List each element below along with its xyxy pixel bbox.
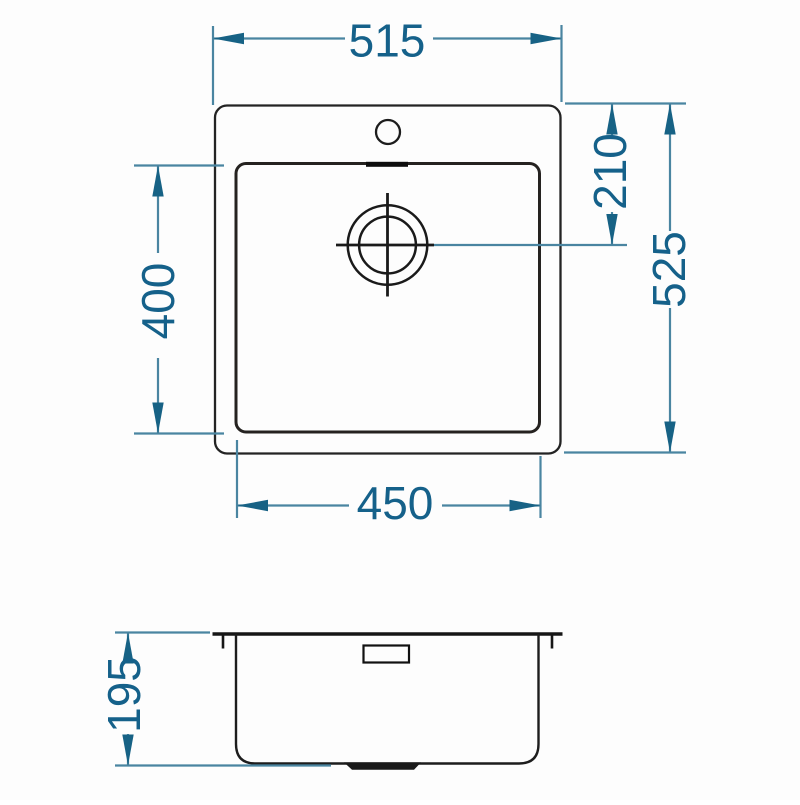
svg-text:450: 450 [357,477,434,529]
svg-text:515: 515 [349,15,426,67]
svg-text:400: 400 [132,263,184,340]
svg-text:210: 210 [584,133,636,210]
svg-text:195: 195 [98,656,150,733]
svg-text:525: 525 [643,231,695,308]
